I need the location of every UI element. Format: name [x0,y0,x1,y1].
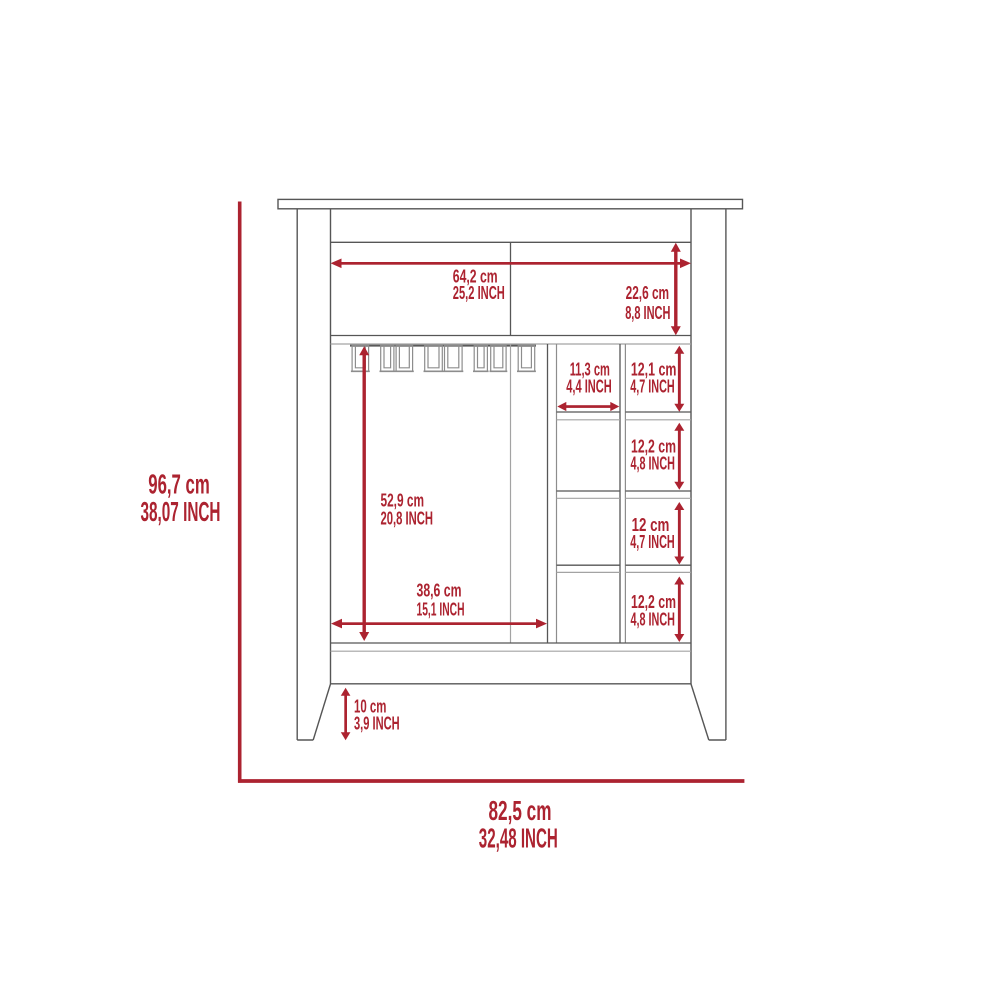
svg-text:4,4 INCH: 4,4 INCH [566,376,612,397]
svg-text:38,07 INCH: 38,07 INCH [141,496,221,527]
svg-text:4,7 INCH: 4,7 INCH [630,376,675,397]
svg-text:3,9 INCH: 3,9 INCH [354,713,400,734]
svg-text:8,8 INCH: 8,8 INCH [625,302,670,323]
svg-text:4,8 INCH: 4,8 INCH [631,453,676,474]
svg-text:4,8 INCH: 4,8 INCH [631,609,676,630]
svg-text:82,5 cm: 82,5 cm [489,795,552,826]
svg-text:4,7 INCH: 4,7 INCH [630,531,675,552]
svg-text:32,48 INCH: 32,48 INCH [479,823,558,854]
svg-text:22,6 cm: 22,6 cm [626,282,670,303]
svg-text:25,2 INCH: 25,2 INCH [453,282,505,303]
svg-text:96,7 cm: 96,7 cm [148,469,210,500]
svg-text:15,1 INCH: 15,1 INCH [417,598,465,619]
svg-text:20,8 INCH: 20,8 INCH [381,508,434,529]
svg-text:38,6 cm: 38,6 cm [417,580,462,601]
